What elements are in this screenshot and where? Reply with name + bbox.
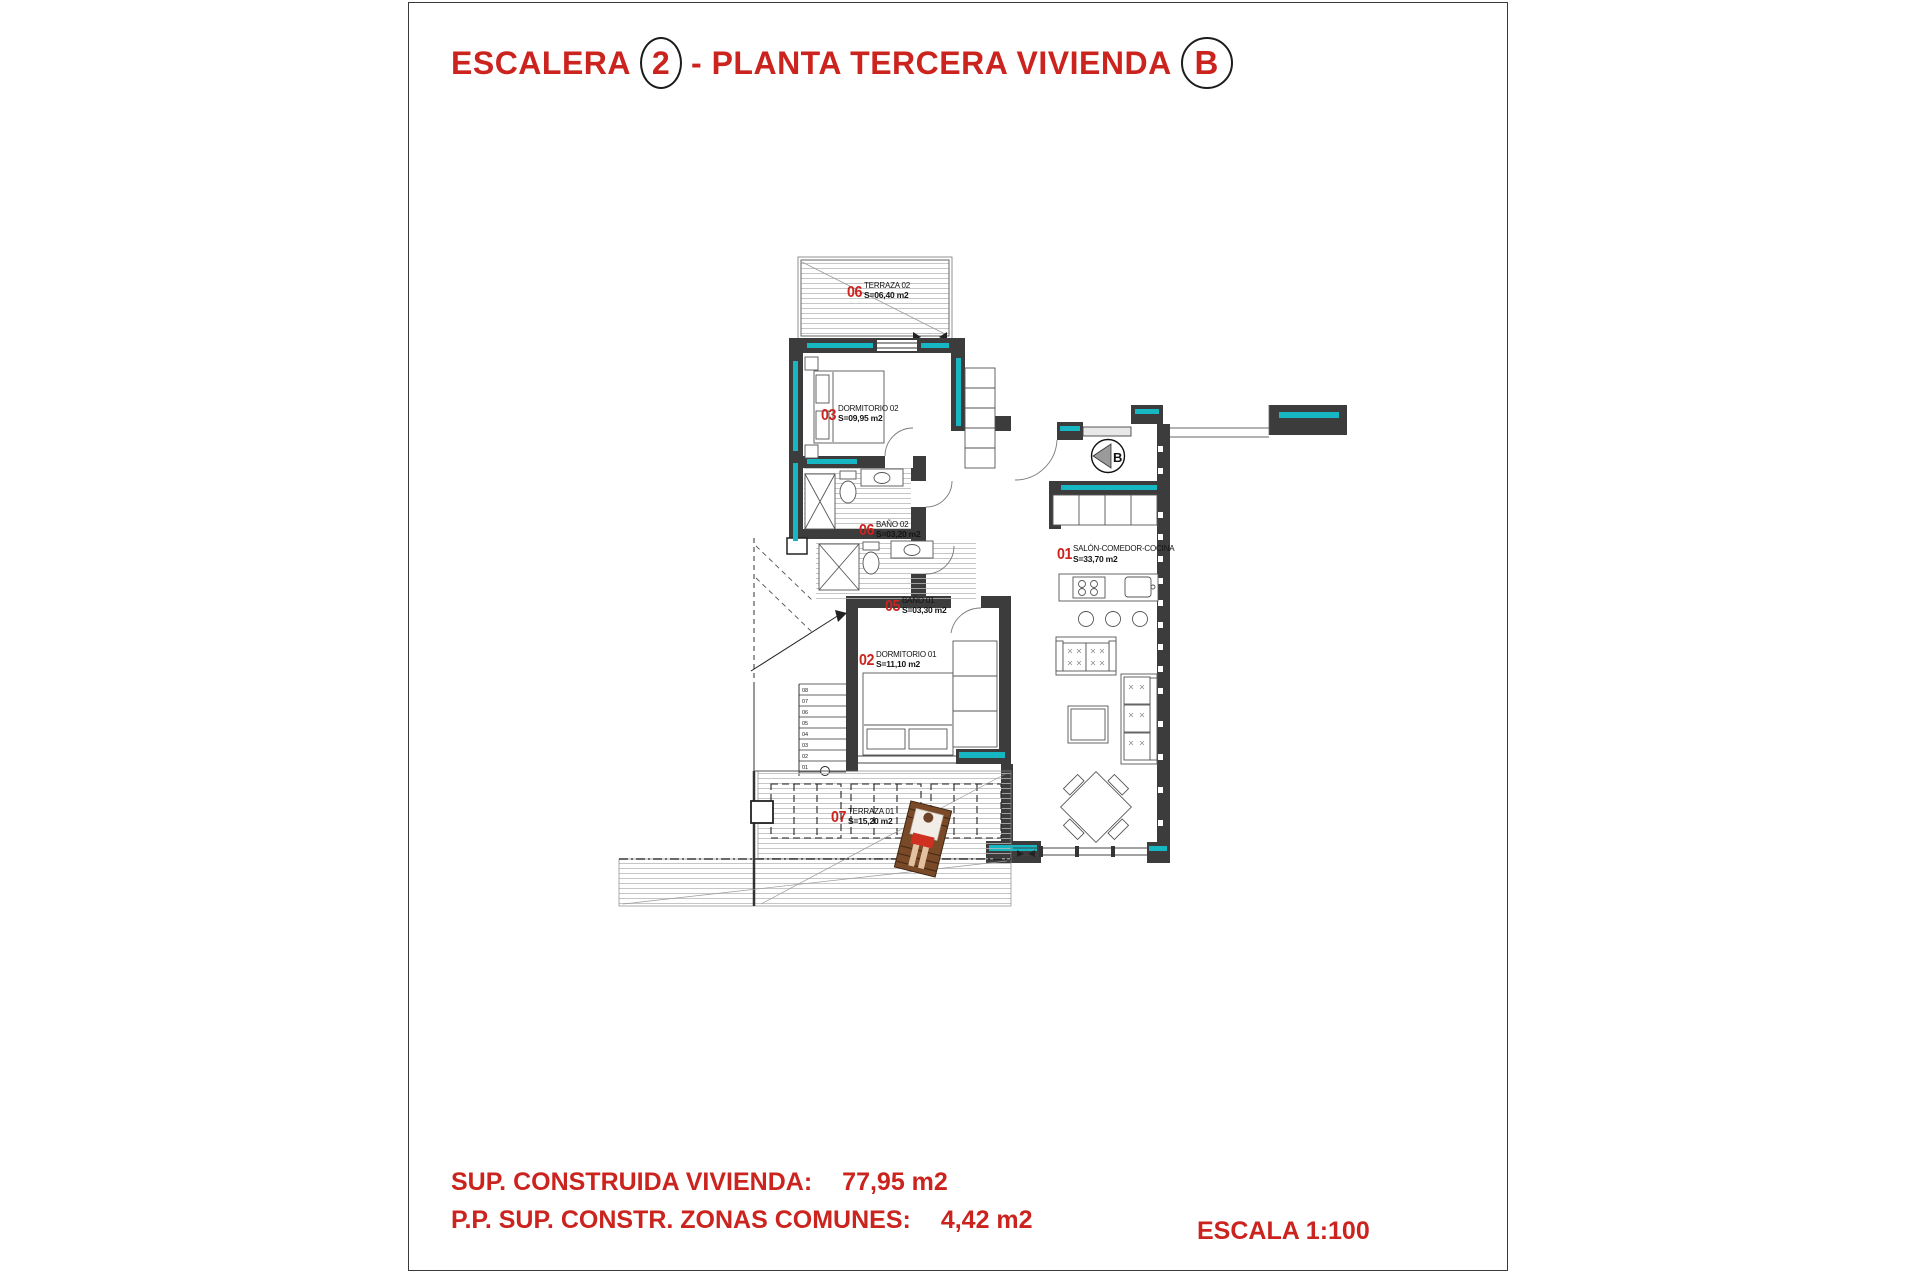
drawing-sheet: ESCALERA 2 - PLANTA TERCERA VIVIENDA B bbox=[408, 2, 1508, 1271]
svg-text:S=06,40 m2: S=06,40 m2 bbox=[864, 290, 909, 300]
common-zones-value: 4,42 m2 bbox=[941, 1206, 1033, 1235]
svg-text:01: 01 bbox=[802, 765, 808, 771]
svg-text:S=15,20 m2: S=15,20 m2 bbox=[848, 816, 893, 826]
svg-text:S=09,95 m2: S=09,95 m2 bbox=[838, 413, 883, 423]
svg-text:SALÓN-COMEDOR-COCINA: SALÓN-COMEDOR-COCINA bbox=[1073, 544, 1175, 553]
entrance-marker: B bbox=[1092, 440, 1125, 473]
svg-text:06: 06 bbox=[802, 710, 808, 716]
label-terraza-02: 06 TERRAZA 02 S=06,40 m2 bbox=[847, 281, 911, 301]
svg-text:TERRAZA 02: TERRAZA 02 bbox=[864, 281, 911, 290]
svg-text:S=03,30 m2: S=03,30 m2 bbox=[902, 605, 947, 615]
svg-text:S=03,20 m2: S=03,20 m2 bbox=[876, 529, 921, 539]
label-dormitorio-01: 02 DORMITORIO 01 S=11,10 m2 bbox=[859, 650, 937, 669]
svg-text:TERRAZA 01: TERRAZA 01 bbox=[848, 807, 895, 816]
svg-text:05: 05 bbox=[802, 721, 808, 727]
svg-text:BAÑO 01: BAÑO 01 bbox=[902, 596, 935, 605]
entry-door bbox=[1015, 427, 1269, 480]
title-word-escalera: ESCALERA bbox=[451, 45, 631, 82]
title-word-planta: - PLANTA TERCERA VIVIENDA bbox=[691, 45, 1172, 82]
svg-text:S=33,70 m2: S=33,70 m2 bbox=[1073, 554, 1118, 564]
svg-text:02: 02 bbox=[802, 754, 808, 760]
svg-text:05: 05 bbox=[885, 598, 901, 615]
svg-text:04: 04 bbox=[802, 732, 808, 738]
area-summary: SUP. CONSTRUIDA VIVIENDA: 77,95 m2 P.P. … bbox=[451, 1168, 1033, 1235]
svg-text:08: 08 bbox=[802, 688, 808, 694]
entrance-marker-letter: B bbox=[1113, 450, 1122, 465]
svg-text:02: 02 bbox=[859, 652, 875, 669]
svg-text:BAÑO 02: BAÑO 02 bbox=[876, 520, 909, 529]
label-terraza-01: 07 TERRAZA 01 S=15,20 m2 bbox=[831, 807, 895, 826]
living-room-furniture bbox=[1013, 637, 1157, 858]
built-area-label: SUP. CONSTRUIDA VIVIENDA: bbox=[451, 1168, 812, 1197]
sheet-title: ESCALERA 2 - PLANTA TERCERA VIVIENDA B bbox=[451, 37, 1233, 89]
svg-text:06: 06 bbox=[859, 522, 875, 539]
dormitorio-01-furniture bbox=[858, 608, 997, 763]
stair-number: 2 bbox=[652, 45, 670, 82]
svg-text:S=11,10 m2: S=11,10 m2 bbox=[876, 659, 921, 669]
label-dormitorio-02: 03 DORMITORIO 02 S=09,95 m2 bbox=[821, 404, 899, 424]
unit-letter: B bbox=[1195, 44, 1219, 82]
common-zones-label: P.P. SUP. CONSTR. ZONAS COMUNES: bbox=[451, 1206, 911, 1235]
common-zones-line: P.P. SUP. CONSTR. ZONAS COMUNES: 4,42 m2 bbox=[451, 1206, 1033, 1235]
terraza-01 bbox=[619, 771, 1011, 906]
svg-text:DORMITORIO 01: DORMITORIO 01 bbox=[876, 650, 937, 659]
unit-letter-circle: B bbox=[1181, 37, 1233, 89]
svg-text:03: 03 bbox=[802, 743, 808, 749]
svg-text:03: 03 bbox=[821, 407, 837, 424]
svg-text:07: 07 bbox=[802, 699, 808, 705]
svg-text:01: 01 bbox=[1057, 546, 1073, 563]
built-area-line: SUP. CONSTRUIDA VIVIENDA: 77,95 m2 bbox=[451, 1168, 1033, 1197]
scale-label: ESCALA 1:100 bbox=[1197, 1217, 1370, 1246]
svg-text:DORMITORIO 02: DORMITORIO 02 bbox=[838, 404, 899, 413]
built-area-value: 77,95 m2 bbox=[842, 1168, 948, 1197]
svg-text:06: 06 bbox=[847, 284, 863, 301]
stair-number-circle: 2 bbox=[640, 37, 682, 89]
floor-plan: B bbox=[601, 251, 1361, 916]
svg-text:07: 07 bbox=[831, 809, 847, 826]
